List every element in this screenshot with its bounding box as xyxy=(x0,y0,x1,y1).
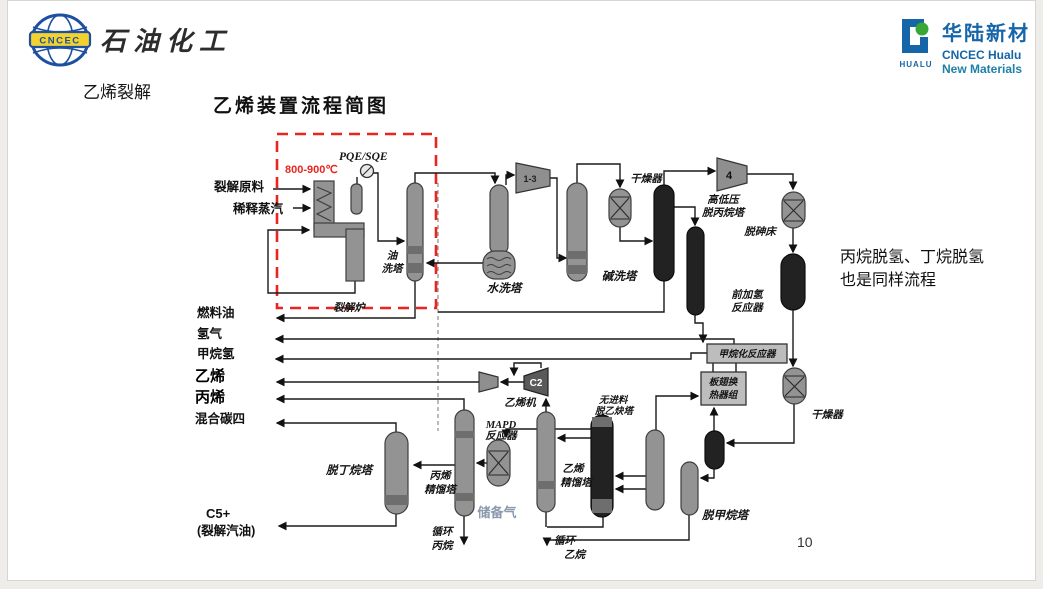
mapd-reactor-vessel xyxy=(487,440,510,486)
stream-c5-label: C5+ xyxy=(206,506,231,521)
deacetylenizer-label-1: 无进料 xyxy=(598,394,629,406)
expander xyxy=(479,372,498,392)
mapd-label-1: MAPD xyxy=(485,420,517,431)
process-flow-diagram: PQE/SQE 800-900℃ 裂解炉 油 洗塔 水洗塔 碱洗塔 干燥器 高低… xyxy=(8,1,1037,582)
c2-compressor-label: C2 xyxy=(530,378,543,389)
temperature-label: 800-900℃ xyxy=(285,164,338,176)
slide-canvas: CNCEC 石油化工 HUALU 华陆新材 CNCEC Hualu New Ma… xyxy=(7,0,1036,581)
front-hydro-label-1: 前加氢 xyxy=(731,288,764,301)
recycle-propane-label-2: 丙烷 xyxy=(432,539,455,552)
arsenic-removal-bed xyxy=(782,192,805,228)
dryer2-label: 干燥器 xyxy=(811,409,844,421)
prefractionator-tower xyxy=(646,430,664,510)
coldbox-label-1: 板翅换 xyxy=(709,376,739,388)
cracking-furnace xyxy=(314,165,374,282)
ethylene-compressor-label: 乙烯机 xyxy=(504,396,537,409)
c2-splitter-label-2: 精馏塔 xyxy=(560,476,594,489)
furnace-label: 裂解炉 xyxy=(333,301,366,314)
oil-wash-label-2: 洗塔 xyxy=(382,262,405,275)
c2-splitter-label-1: 乙烯 xyxy=(563,462,585,475)
debutanizer-label: 脱丁烷塔 xyxy=(325,463,374,477)
demethanizer-label: 脱甲烷塔 xyxy=(701,508,750,522)
depropanizer-towers xyxy=(654,185,704,315)
stream-fuel-oil-label: 燃料油 xyxy=(197,305,235,320)
stream-c5-sub-label: (裂解汽油) xyxy=(197,523,255,538)
water-wash-label: 水洗塔 xyxy=(487,282,524,295)
stream-propylene-label: 丙烯 xyxy=(195,388,225,406)
water-wash-tower xyxy=(483,185,515,279)
recycle-propane-label-1: 循环 xyxy=(432,525,455,538)
dryer-1-vessel xyxy=(609,189,631,227)
flash-drum xyxy=(705,431,724,469)
oil-wash-tower xyxy=(407,183,423,281)
mapd-label-2: 反应器 xyxy=(485,429,518,442)
front-hydro-label-2: 反应器 xyxy=(731,301,764,314)
c3-splitter-tower xyxy=(455,410,474,516)
c3-splitter-label-1: 丙烯 xyxy=(430,469,452,482)
stream-ethylene-label: 乙烯 xyxy=(195,367,225,385)
c3-splitter-label-2: 精馏塔 xyxy=(424,483,458,496)
debutanizer-tower xyxy=(385,432,408,514)
dryer-2-vessel xyxy=(783,368,806,404)
stream-dilution-steam-label: 稀释蒸汽 xyxy=(233,201,284,216)
stream-hydrogen-label: 氢气 xyxy=(197,326,223,341)
methanation-label: 甲烷化反应器 xyxy=(718,348,777,360)
c2-splitter-tower xyxy=(537,412,555,512)
demethanizer-tower xyxy=(681,462,698,515)
compressor1-stage-label: 1-3 xyxy=(523,174,536,184)
depropanizer-label-1: 高低压 xyxy=(707,193,741,206)
coldbox-label-2: 热器组 xyxy=(708,389,739,401)
recycle-ethane-label-1: 循环 xyxy=(554,534,577,547)
depropanizer-label-2: 脱丙烷塔 xyxy=(701,206,746,219)
compressor4-stage-label: 4 xyxy=(726,170,733,182)
stream-feed-label: 裂解原料 xyxy=(213,179,265,194)
recycle-ethane-label-2: 乙烷 xyxy=(564,548,587,561)
pqe-sqe-label: PQE/SQE xyxy=(339,151,388,163)
front-hydrogenation-reactor xyxy=(781,254,805,310)
deacetylenizer-label-2: 脱乙炔塔 xyxy=(594,405,636,417)
oil-wash-label-1: 油 xyxy=(387,249,399,262)
reserve-gas-label: 储备气 xyxy=(476,505,516,520)
caustic-wash-label: 碱洗塔 xyxy=(602,270,639,283)
stream-methane-h2-label: 甲烷氢 xyxy=(197,346,235,361)
stream-mixed-c4-label: 混合碳四 xyxy=(195,411,245,426)
dryer1-label: 干燥器 xyxy=(630,173,663,185)
deacetylenizer-tower xyxy=(591,415,613,517)
arsenic-bed-label: 脱砷床 xyxy=(743,225,778,238)
caustic-wash-tower xyxy=(567,183,587,281)
